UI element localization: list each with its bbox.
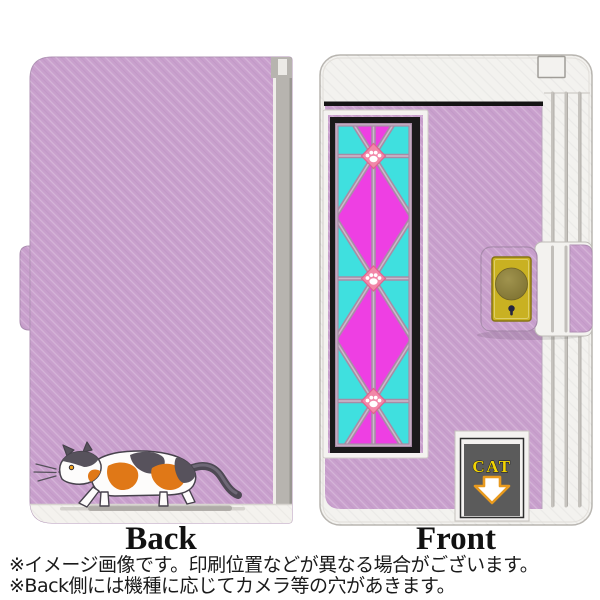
back-view-label: Back xyxy=(30,522,292,556)
product-image-stage: CAT Back Front ※イメージ画像です。印刷位置などが xyxy=(0,0,600,600)
cat-front-leg xyxy=(100,492,109,506)
cat-rear-leg xyxy=(159,492,168,506)
front-view-label: Front xyxy=(320,522,592,556)
clasp-button-icon xyxy=(496,268,528,300)
cat-badge-label: CAT xyxy=(472,457,511,476)
cat-nose xyxy=(58,471,60,473)
black-trim-line xyxy=(324,102,543,107)
camera-notch-outline xyxy=(538,57,565,78)
stained-glass-window xyxy=(323,95,428,463)
cat-eye xyxy=(69,465,73,469)
phone-case-artwork: CAT xyxy=(0,0,600,600)
magnetic-clasp xyxy=(477,242,592,340)
cat-badge: CAT xyxy=(455,431,529,521)
footnote-camera-holes: ※Back側には機種に応じてカメラ等の穴があきます。 xyxy=(9,576,599,597)
back-spine-edge xyxy=(271,57,292,523)
footnote-image-disclaimer: ※イメージ画像です。印刷位置などが異なる場合がございます。 xyxy=(9,555,599,576)
front-view: CAT xyxy=(320,55,592,525)
back-view xyxy=(20,57,292,524)
asanoha-paw-pattern xyxy=(335,95,412,463)
